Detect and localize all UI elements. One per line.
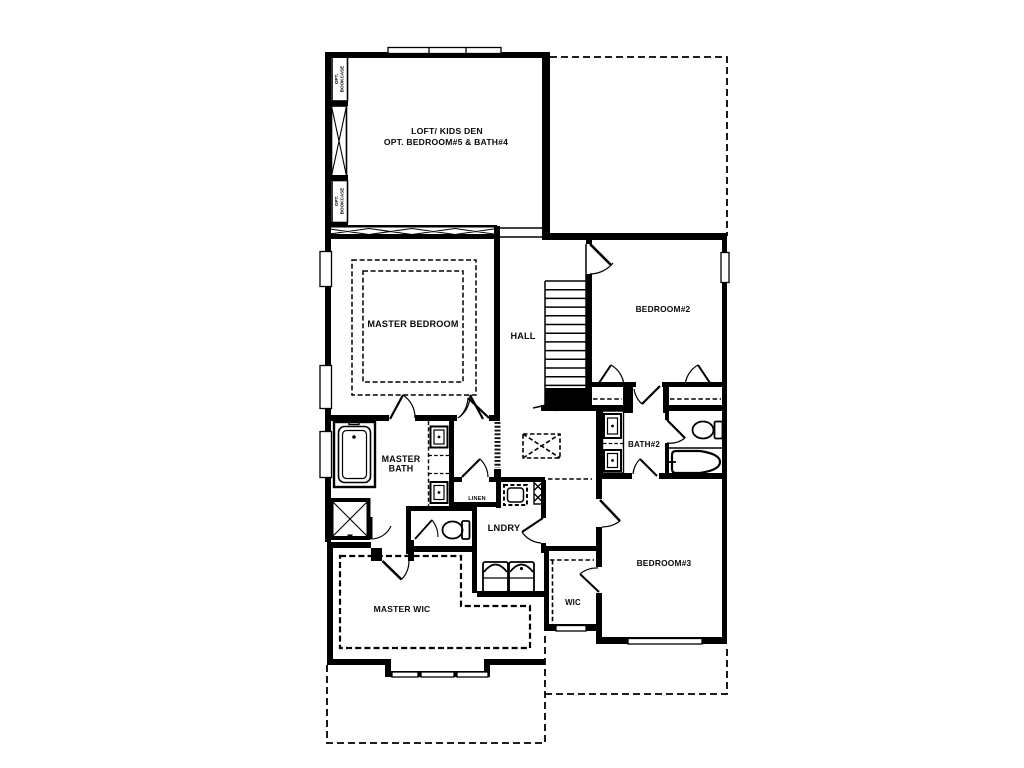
svg-text:BATH: BATH (389, 464, 414, 474)
svg-text:OPT. BEDROOM#5 & BATH#4: OPT. BEDROOM#5 & BATH#4 (384, 137, 508, 147)
svg-text:WIC: WIC (565, 598, 581, 607)
svg-text:MASTER BEDROOM: MASTER BEDROOM (367, 319, 458, 329)
svg-text:BEDROOM#3: BEDROOM#3 (637, 558, 692, 568)
svg-text:BOOKCASE: BOOKCASE (340, 188, 345, 215)
svg-text:LOFT/ KIDS DEN: LOFT/ KIDS DEN (411, 126, 483, 136)
svg-text:MASTER: MASTER (382, 454, 421, 464)
svg-text:HALL: HALL (510, 331, 535, 341)
svg-text:BEDROOM#2: BEDROOM#2 (636, 304, 691, 314)
svg-text:OPT.: OPT. (334, 74, 339, 84)
svg-text:OPT.: OPT. (334, 196, 339, 206)
svg-text:BOOKCASE: BOOKCASE (340, 66, 345, 93)
svg-text:MASTER WIC: MASTER WIC (374, 604, 431, 614)
svg-text:BATH#2: BATH#2 (628, 440, 660, 449)
svg-text:LINEN: LINEN (468, 496, 486, 502)
svg-text:LNDRY: LNDRY (488, 523, 521, 533)
